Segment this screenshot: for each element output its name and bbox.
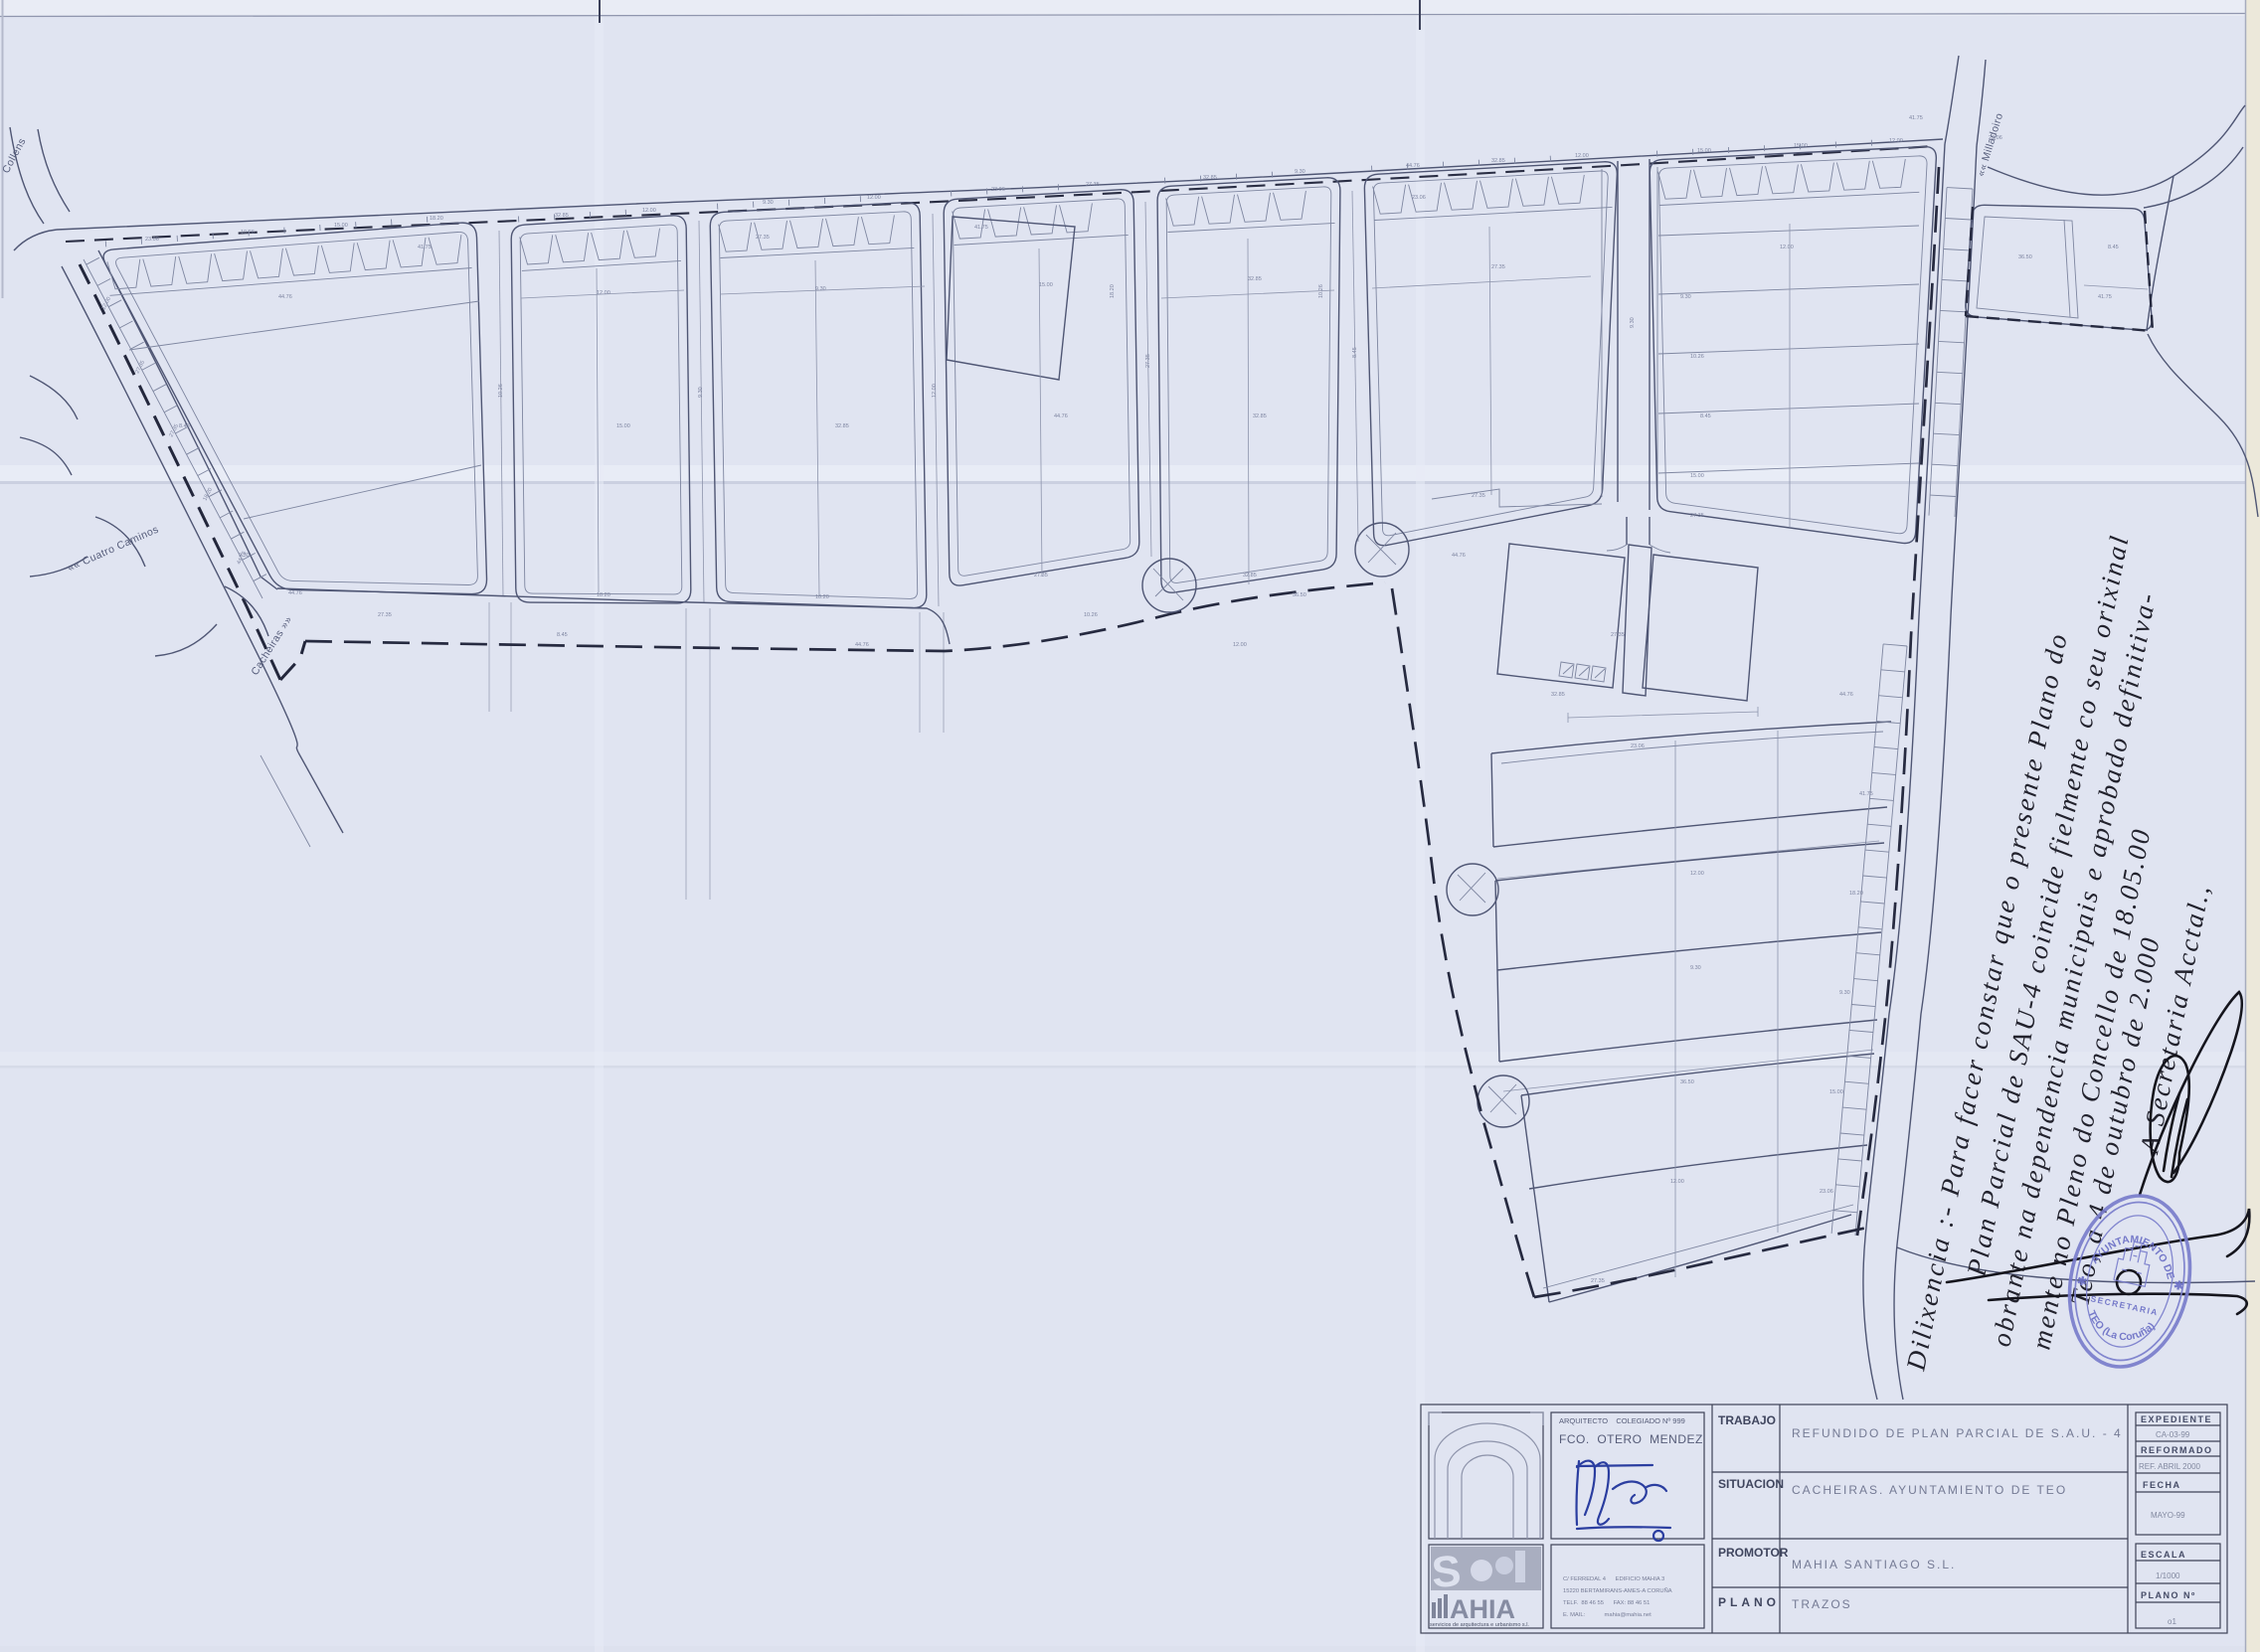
svg-text:15.00: 15.00 [1829, 1089, 1843, 1095]
svg-text:12.00: 12.00 [1233, 642, 1247, 648]
svg-text:18.20: 18.20 [815, 594, 829, 600]
svg-text:TELF. 88 46 55 FAX: 88 4: TELF. 88 46 55 FAX: 88 46 51 [1563, 1600, 1650, 1606]
svg-text:10.26: 10.26 [498, 384, 504, 398]
svg-text:9.30: 9.30 [1295, 169, 1305, 175]
svg-text:AHIA: AHIA [1450, 1594, 1515, 1624]
svg-text:15.00: 15.00 [334, 223, 348, 229]
svg-text:12.00: 12.00 [867, 195, 881, 201]
svg-text:27.35: 27.35 [1086, 182, 1100, 188]
svg-text:27.35: 27.35 [1611, 632, 1625, 638]
svg-text:27.35: 27.35 [1034, 573, 1048, 578]
svg-text:18.20: 18.20 [1110, 284, 1116, 298]
svg-text:10.26: 10.26 [1690, 354, 1704, 360]
svg-text:10.26: 10.26 [241, 230, 255, 236]
svg-text:12.00: 12.00 [597, 290, 610, 296]
svg-text:32.85: 32.85 [1203, 175, 1217, 181]
svg-text:8.45: 8.45 [1352, 347, 1358, 358]
svg-text:44.76: 44.76 [1452, 553, 1466, 559]
svg-text:12.00: 12.00 [1690, 871, 1704, 877]
svg-text:41.75: 41.75 [418, 245, 432, 250]
svg-text:servicios de arquitectura e ur: servicios de arquitectura e urbanismo s.… [1430, 1622, 1529, 1628]
svg-text:MAHIA SANTIAGO S.L.: MAHIA SANTIAGO S.L. [1792, 1558, 1956, 1571]
svg-text:27.35: 27.35 [1145, 354, 1151, 368]
svg-text:41.75: 41.75 [2098, 294, 2112, 300]
svg-text:MAYO-99: MAYO-99 [2151, 1511, 2185, 1520]
svg-text:32.85: 32.85 [1248, 276, 1262, 282]
svg-text:SITUACION: SITUACION [1718, 1477, 1784, 1491]
svg-text:32.85: 32.85 [835, 423, 849, 429]
svg-text:CACHEIRAS. AYUNTAMIENTO DE TEO: CACHEIRAS. AYUNTAMIENTO DE TEO [1792, 1483, 2067, 1497]
svg-text:44.76: 44.76 [855, 642, 869, 648]
svg-text:32.85: 32.85 [1243, 573, 1257, 578]
svg-text:12.00: 12.00 [1575, 153, 1589, 159]
svg-text:CA-03-99: CA-03-99 [2156, 1430, 2190, 1439]
svg-text:TRABAJO: TRABAJO [1718, 1413, 1776, 1427]
svg-text:PLANO Nº: PLANO Nº [2141, 1590, 2196, 1600]
svg-text:18.20: 18.20 [430, 216, 443, 222]
svg-text:9.30: 9.30 [1690, 965, 1701, 971]
svg-text:15.00: 15.00 [1690, 473, 1704, 479]
svg-text:REF. ABRIL 2000: REF. ABRIL 2000 [2139, 1462, 2201, 1471]
svg-text:44.76: 44.76 [1839, 692, 1853, 698]
svg-text:10.26: 10.26 [1318, 284, 1324, 298]
svg-text:23.06: 23.06 [1412, 195, 1426, 201]
svg-text:15220 BERTAMIRANS-AMES-A CORUÑ: 15220 BERTAMIRANS-AMES-A CORUÑA [1563, 1587, 1672, 1594]
svg-text:27.35: 27.35 [1491, 264, 1505, 270]
svg-text:o1: o1 [2168, 1617, 2176, 1626]
svg-text:27.35: 27.35 [1472, 493, 1485, 499]
svg-text:12.00: 12.00 [642, 208, 656, 214]
svg-text:36.50: 36.50 [2018, 254, 2032, 260]
svg-text:15.00: 15.00 [1794, 143, 1808, 149]
svg-text:23.06: 23.06 [1820, 1189, 1833, 1195]
svg-text:27.35: 27.35 [1591, 1278, 1605, 1284]
svg-text:15.00: 15.00 [1697, 148, 1711, 154]
svg-text:E. MAIL: mahia@mahi: E. MAIL: mahia@mahia.net [1563, 1612, 1652, 1618]
svg-text:18.20: 18.20 [1849, 891, 1863, 897]
svg-text:44.76: 44.76 [1054, 413, 1068, 419]
svg-text:23.06: 23.06 [145, 237, 159, 243]
svg-text:44.76: 44.76 [278, 294, 292, 300]
svg-text:41.75: 41.75 [1909, 115, 1923, 121]
svg-text:27.35: 27.35 [756, 235, 770, 241]
svg-text:44.76: 44.76 [288, 590, 302, 596]
svg-text:23.06: 23.06 [1989, 135, 2002, 141]
svg-text:S: S [1430, 1547, 1463, 1597]
svg-text:41.75: 41.75 [1859, 791, 1873, 797]
svg-text:8.45: 8.45 [557, 632, 568, 638]
svg-text:FCO. OTERO MENDEZ: FCO. OTERO MENDEZ [1559, 1432, 1703, 1446]
svg-text:12.00: 12.00 [1670, 1179, 1684, 1185]
svg-text:32.85: 32.85 [1551, 692, 1565, 698]
svg-text:15.00: 15.00 [1039, 282, 1053, 288]
svg-text:23.06: 23.06 [991, 187, 1005, 193]
svg-text:9.30: 9.30 [1680, 294, 1691, 300]
svg-text:12.00: 12.00 [1780, 245, 1794, 250]
svg-text:18.20: 18.20 [597, 592, 610, 598]
svg-text:9.30: 9.30 [239, 553, 250, 559]
svg-text:23.06: 23.06 [1631, 743, 1645, 749]
svg-text:C/ FERREDAL 4 EDIFICIO MA: C/ FERREDAL 4 EDIFICIO MAHIA 3 [1563, 1576, 1664, 1582]
svg-text:36.50: 36.50 [1680, 1079, 1694, 1085]
svg-text:9.30: 9.30 [698, 387, 704, 398]
svg-text:9.30: 9.30 [763, 200, 774, 206]
svg-text:PROMOTOR: PROMOTOR [1718, 1546, 1789, 1560]
svg-text:8.45: 8.45 [2108, 245, 2119, 250]
svg-text:8.45: 8.45 [1700, 413, 1711, 419]
svg-text:12.00: 12.00 [932, 384, 938, 398]
svg-text:12.00: 12.00 [1889, 138, 1903, 144]
svg-text:9.30: 9.30 [1630, 317, 1636, 328]
svg-text:41.75: 41.75 [974, 225, 988, 231]
svg-text:15.00: 15.00 [616, 423, 630, 429]
svg-text:32.85: 32.85 [555, 213, 569, 219]
svg-text:36.50: 36.50 [1293, 592, 1306, 598]
svg-text:REFUNDIDO DE PLAN PARCIAL DE S: REFUNDIDO DE PLAN PARCIAL DE S.A.U. - 4 [1792, 1426, 2123, 1440]
svg-text:FECHA: FECHA [2143, 1480, 2181, 1490]
svg-text:EXPEDIENTE: EXPEDIENTE [2141, 1414, 2212, 1424]
svg-text:10.26: 10.26 [1084, 612, 1098, 618]
svg-text:32.85: 32.85 [1491, 158, 1505, 164]
svg-text:1/1000: 1/1000 [2156, 1571, 2180, 1580]
svg-text:TRAZOS: TRAZOS [1792, 1597, 1852, 1611]
svg-text:44.76: 44.76 [1406, 163, 1420, 169]
svg-text:27.35: 27.35 [378, 612, 392, 618]
svg-text:32.85: 32.85 [1253, 413, 1267, 419]
svg-text:PLANO: PLANO [1718, 1595, 1780, 1609]
svg-text:ESCALA: ESCALA [2141, 1550, 2186, 1560]
svg-text:REFORMADO: REFORMADO [2141, 1445, 2213, 1455]
svg-text:9.30: 9.30 [1839, 990, 1850, 996]
svg-text:ARQUITECTO COLEGIADO Nº 999: ARQUITECTO COLEGIADO Nº 999 [1559, 1416, 1685, 1425]
svg-text:27.35: 27.35 [1690, 513, 1704, 519]
svg-text:9.30: 9.30 [815, 286, 826, 292]
svg-text:8.45: 8.45 [179, 423, 190, 429]
